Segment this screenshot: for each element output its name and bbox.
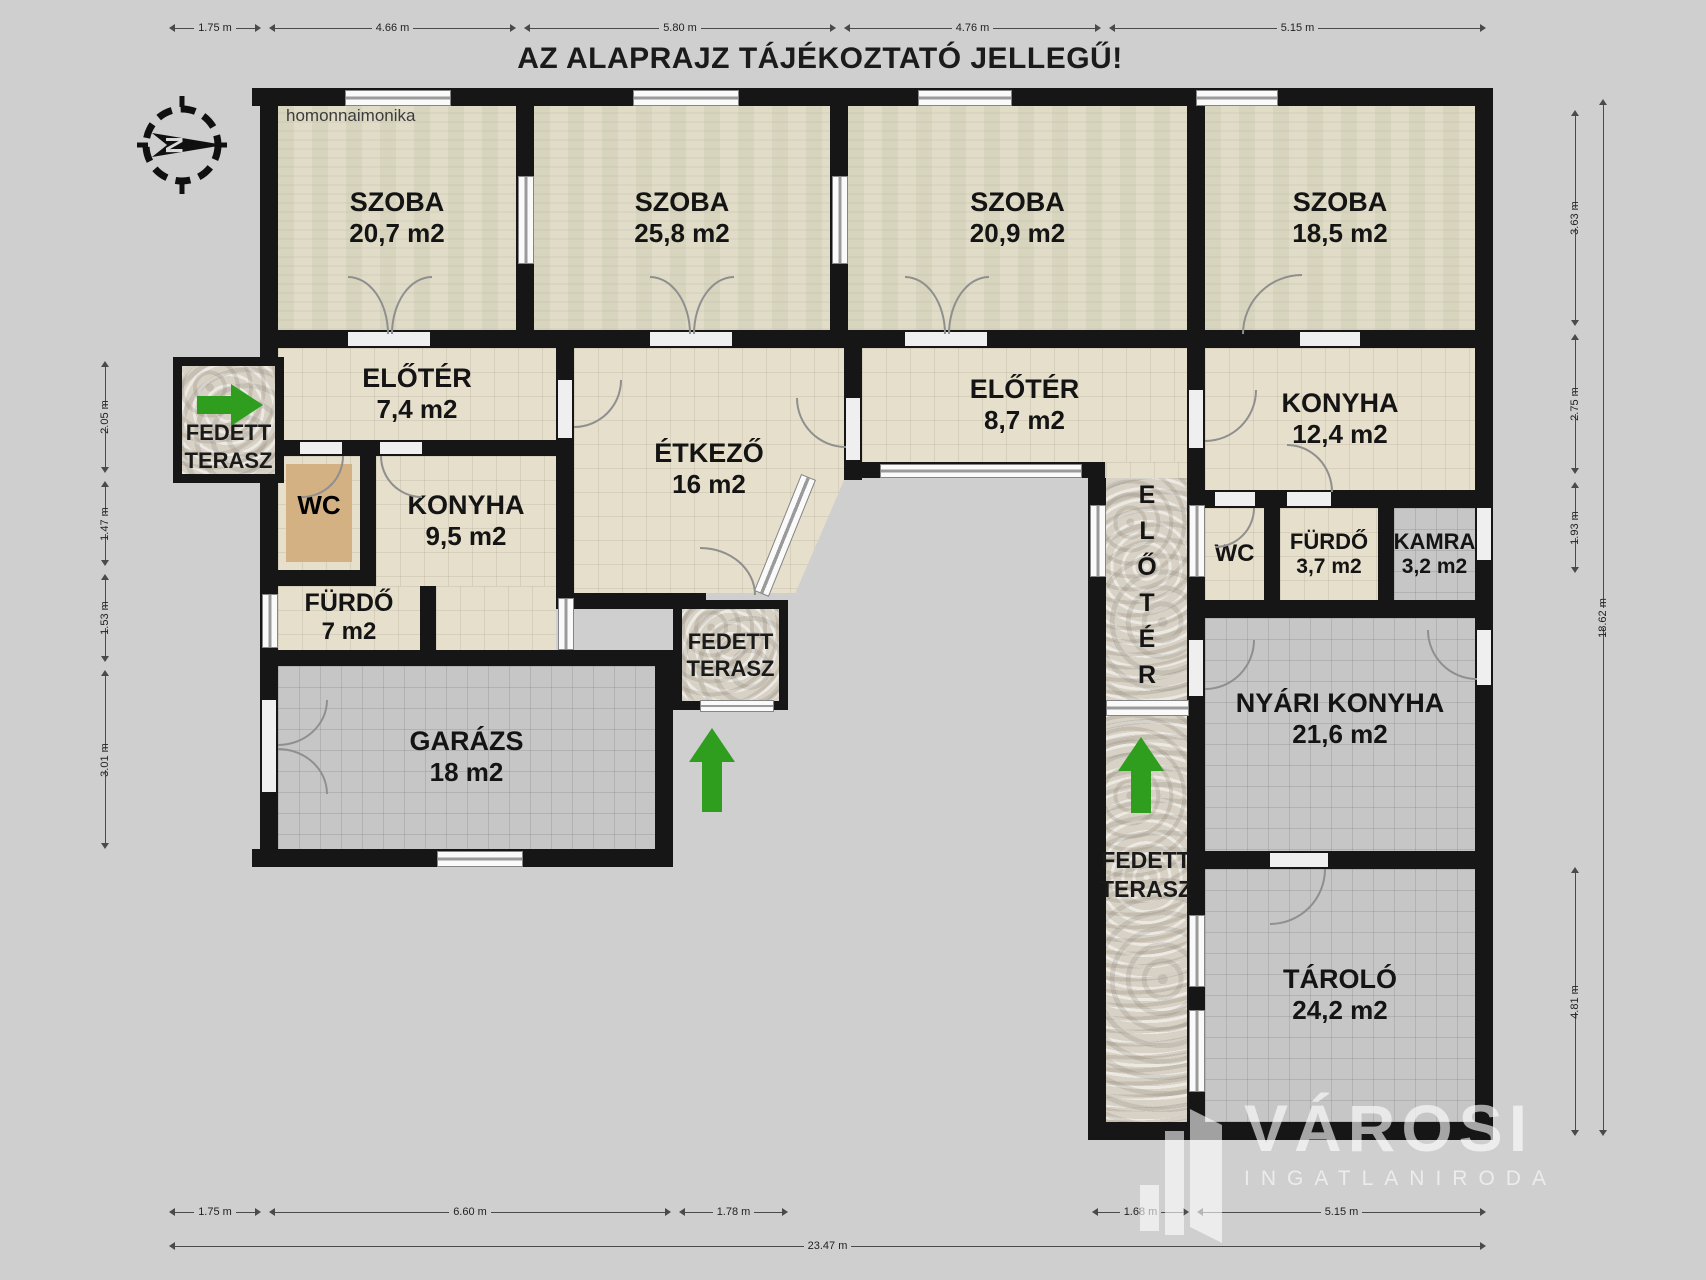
disclaimer-title: AZ ALAPRAJZ TÁJÉKOZTATÓ JELLEGŰ! [280, 42, 1360, 76]
dim-bottom-3: 1.78 m [675, 1206, 792, 1218]
door-opening [1215, 492, 1255, 506]
door-opening [348, 332, 430, 346]
room-szoba-4: SZOBA 18,5 m2 [1205, 106, 1475, 330]
wall [1378, 508, 1394, 600]
window [633, 90, 739, 106]
room-szoba-2: SZOBA 25,8 m2 [534, 106, 830, 330]
room-tarolo: TÁROLÓ 24,2 m2 [1205, 869, 1475, 1122]
room-szoba-3: SZOBA 20,9 m2 [848, 106, 1187, 330]
dim-top-1: 1.75 m [165, 22, 265, 34]
entrance-arrow-right-head [1118, 737, 1164, 771]
dim-left-4: 3.01 m [98, 666, 112, 853]
wall [1187, 106, 1205, 330]
window [700, 700, 774, 712]
dim-bottom-1: 1.75 m [165, 1206, 265, 1218]
window [1196, 90, 1278, 106]
door-opening [1477, 508, 1491, 560]
wall [1475, 88, 1493, 1140]
door-opening [380, 442, 422, 454]
floorplan-canvas: AZ ALAPRAJZ TÁJÉKOZTATÓ JELLEGŰ! homonna… [0, 0, 1706, 1280]
door-opening [1477, 630, 1491, 685]
dim-right-3: 1.93 m [1568, 478, 1582, 577]
window [1189, 1010, 1205, 1092]
room-garazs: GARÁZS 18 m2 [278, 666, 655, 849]
window [558, 598, 574, 650]
window [1189, 915, 1205, 987]
wall [1264, 508, 1280, 600]
wall [260, 650, 673, 666]
dim-left-2: 1.47 m [98, 477, 112, 570]
door-opening [1287, 492, 1331, 506]
dim-right-total: 18.62 m [1596, 95, 1610, 1140]
dim-top-3: 5.80 m [520, 22, 840, 34]
window [918, 90, 1012, 106]
wall [278, 570, 376, 586]
window [1189, 505, 1205, 577]
dim-right-4: 4.81 m [1568, 863, 1582, 1140]
door-opening [1300, 332, 1360, 346]
watermark: homonnaimonika [286, 106, 415, 126]
door-opening [846, 398, 860, 460]
room-wc-1-label: WC [286, 490, 352, 521]
dim-right-2: 2.75 m [1568, 330, 1582, 478]
dim-top-5: 5.15 m [1105, 22, 1490, 34]
door-opening [1189, 390, 1203, 448]
agency-logo: VÁROSI INGATLANIRODA [1140, 1095, 1557, 1243]
room-eloter-2: ELŐTÉR 8,7 m2 [862, 348, 1187, 462]
agency-subtitle: INGATLANIRODA [1244, 1167, 1557, 1191]
wall [1187, 600, 1493, 618]
eloter-corridor-junction [1106, 462, 1187, 478]
dim-left-3: 1.53 m [98, 570, 112, 666]
room-konyha-95-lower [436, 586, 556, 650]
window [880, 464, 1082, 478]
entrance-arrow-right [1131, 771, 1151, 813]
door-opening [650, 332, 732, 346]
dim-bottom-2: 6.60 m [265, 1206, 675, 1218]
room-furdo-1: FÜRDŐ 7 m2 [278, 586, 420, 650]
agency-logo-text: VÁROSI INGATLANIRODA [1244, 1095, 1557, 1191]
compass-letter: N [160, 136, 187, 153]
wall [1187, 851, 1493, 869]
door-opening [905, 332, 987, 346]
room-eloter-1: ELŐTÉR 7,4 m2 [278, 348, 556, 440]
window [832, 176, 848, 264]
window [1106, 700, 1189, 716]
dim-right-1: 3.63 m [1568, 106, 1582, 330]
dim-top-4: 4.76 m [840, 22, 1105, 34]
agency-logo-icon [1140, 1109, 1222, 1243]
door-opening [262, 700, 276, 792]
room-kamra: KAMRA 3,2 m2 [1394, 508, 1475, 600]
dim-top-2: 4.66 m [265, 22, 520, 34]
entrance-arrow-center-head [689, 728, 735, 762]
dim-left-1: 2.05 m [98, 357, 112, 477]
agency-brand: VÁROSI [1244, 1095, 1557, 1161]
corridor-eloter-label: ELŐTÉR [1132, 481, 1161, 697]
window [345, 90, 451, 106]
wall [360, 456, 376, 586]
window [437, 851, 523, 867]
room-furdo-2: FÜRDŐ 3,7 m2 [1280, 508, 1378, 600]
terasz-center-box: FEDETT TERASZ [673, 600, 788, 710]
window [518, 176, 534, 264]
door-opening [300, 442, 342, 454]
entrance-arrow-left-head [231, 384, 263, 426]
corridor-terasz-label: FEDETT TERASZ [1076, 846, 1216, 904]
entrance-arrow-center [702, 762, 722, 812]
door-opening [558, 380, 572, 438]
wall [1088, 478, 1106, 1140]
door-opening [1189, 640, 1203, 696]
terasz-left-box: FEDETT TERASZ [173, 357, 284, 483]
entrance-arrow-left [197, 396, 231, 414]
compass-north-icon: N [134, 92, 234, 202]
room-szoba-1: SZOBA 20,7 m2 [278, 106, 516, 330]
corridor-eloter: ELŐTÉR [1106, 478, 1187, 700]
window [1090, 505, 1106, 577]
wall [655, 666, 673, 867]
door-opening [1270, 853, 1328, 867]
window [262, 594, 278, 648]
